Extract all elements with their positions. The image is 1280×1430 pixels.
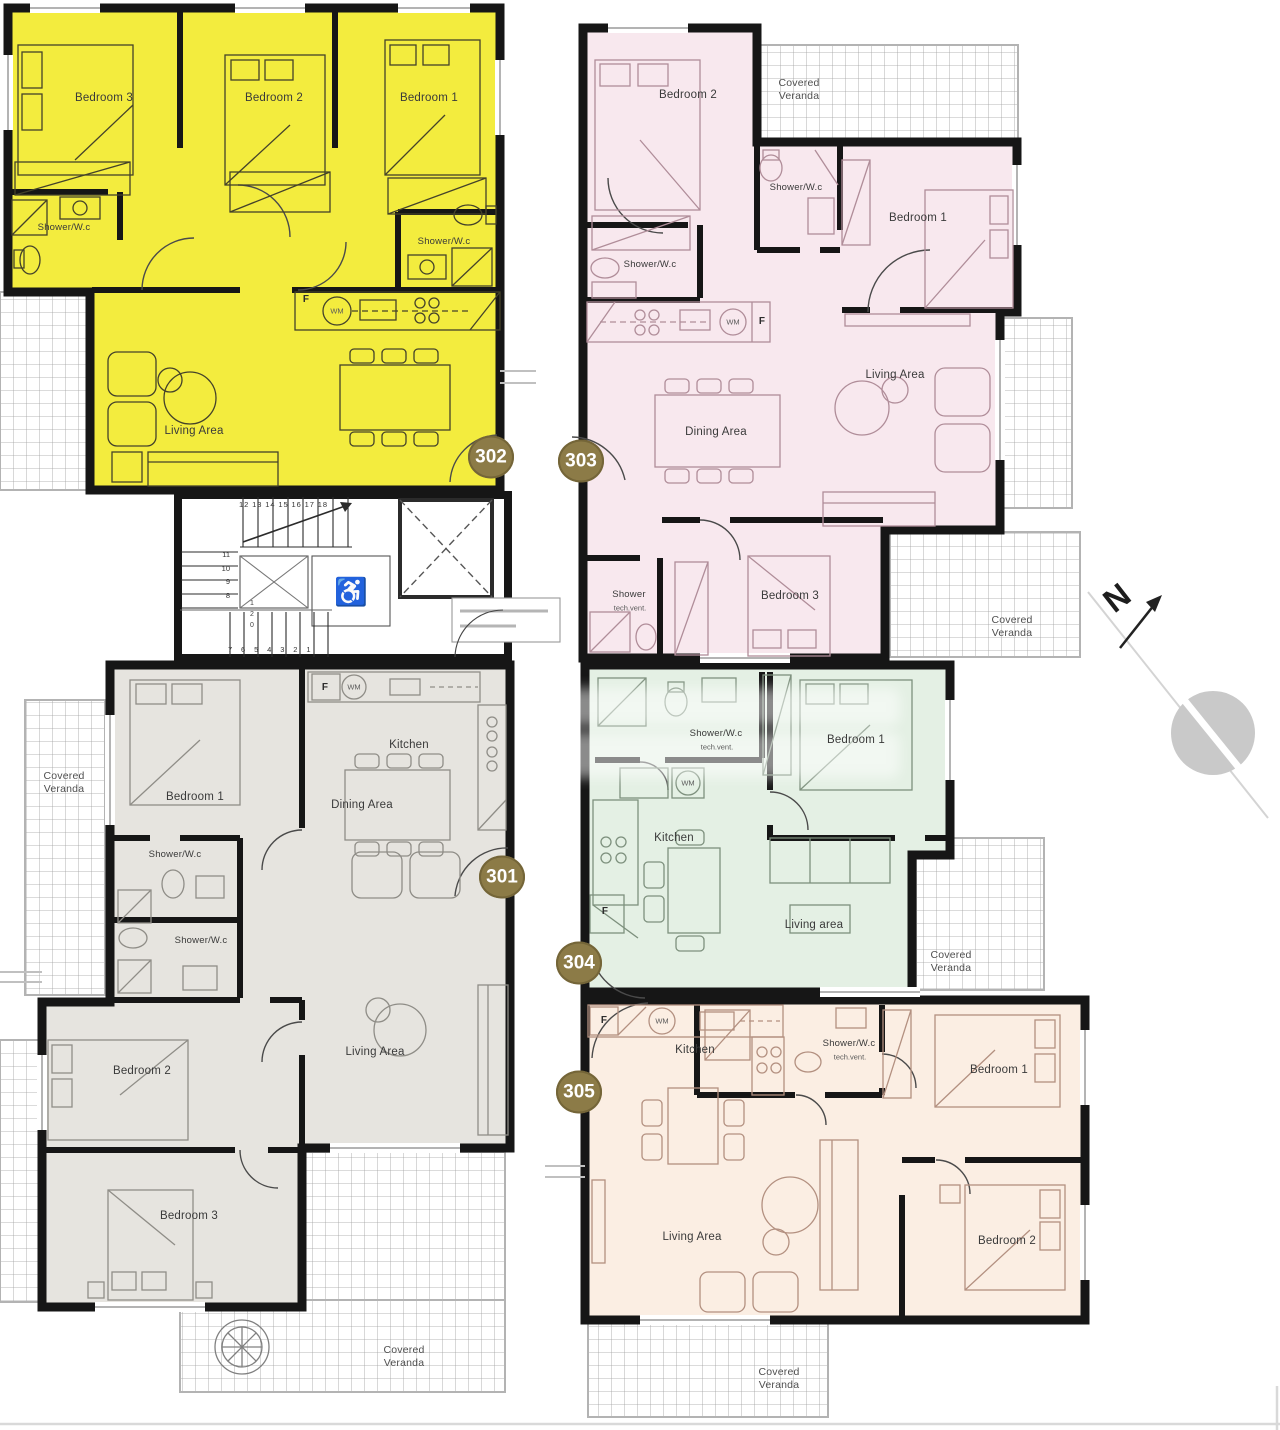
north-arrow (1088, 592, 1268, 818)
unit-badge-302: 302 (468, 436, 514, 479)
unit-badge-303: 303 (558, 440, 604, 483)
unit-badge-305: 305 (556, 1071, 602, 1114)
unit-badge-304: 304 (556, 942, 602, 985)
wheelchair-accessible-icon: ♿ (334, 576, 368, 608)
watermark (560, 732, 900, 778)
floor-plan-canvas: 302 303 301 304 305 Bedroom 3 Bedroom 2 … (0, 0, 1280, 1430)
watermark (560, 688, 900, 726)
veranda-rosette (215, 1320, 269, 1374)
unit-badge-301: 301 (479, 856, 525, 899)
